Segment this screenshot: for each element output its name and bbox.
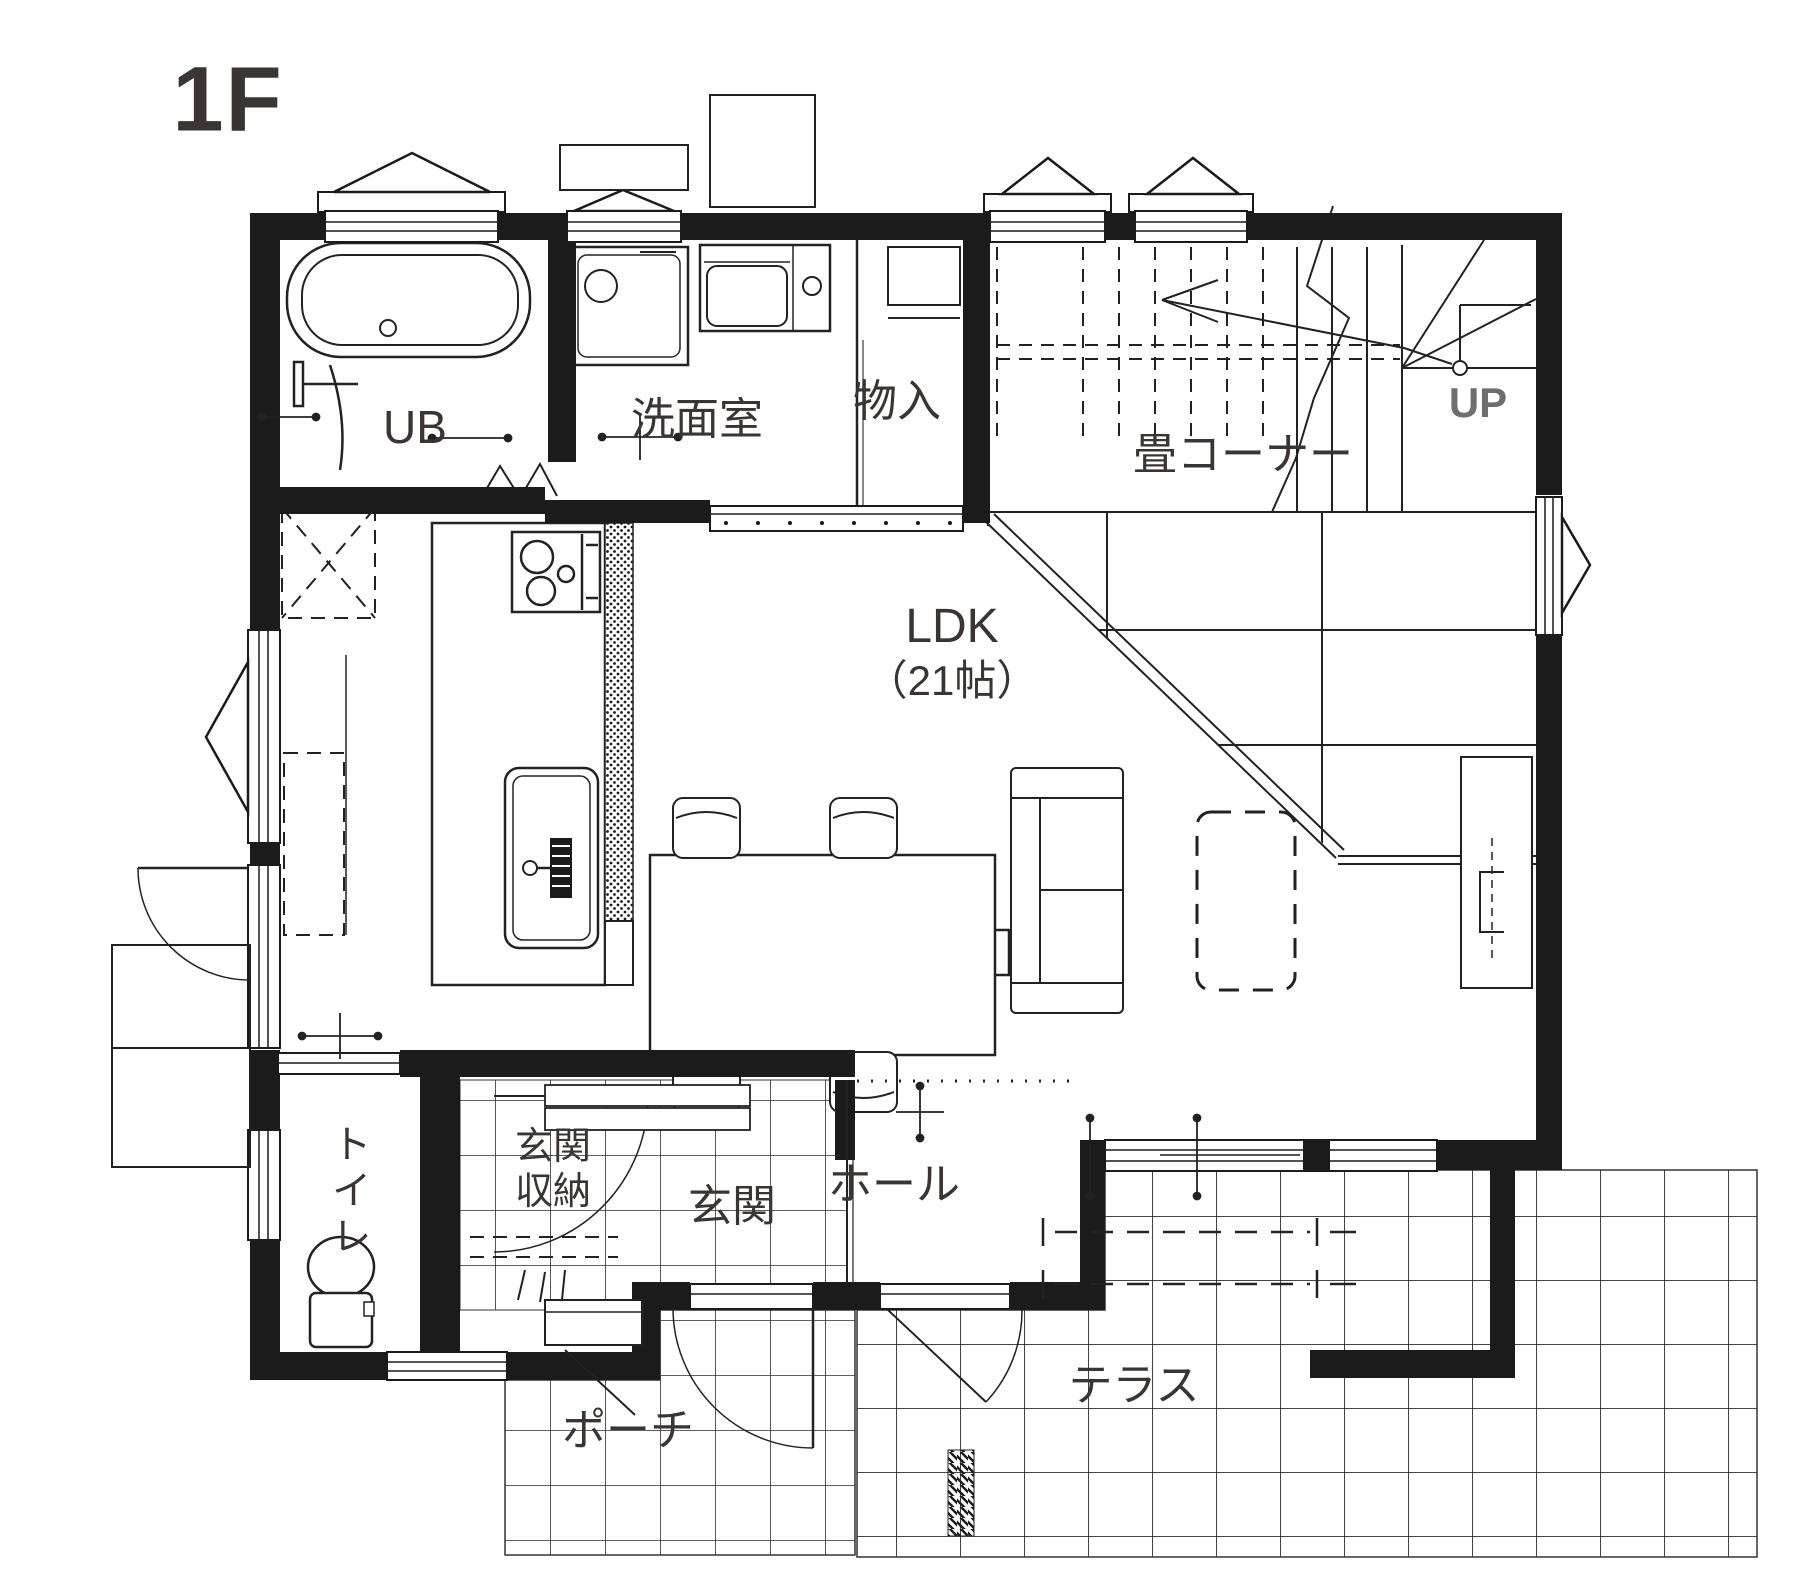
- vanity-sink-icon: [700, 245, 830, 331]
- terrace-tile-floor: [857, 1170, 1757, 1557]
- slider-mullion: [1303, 1140, 1330, 1170]
- closet-shelf-icon: [888, 247, 960, 318]
- room-label-hall: ホール: [828, 1159, 960, 1211]
- floor-plan-page: 1F UB 洗面室 物入 畳コーナー UP LDK （21帖） トイレ 玄関収納…: [0, 0, 1800, 1584]
- washing-machine-icon: [570, 247, 688, 365]
- floor-plan-canvas: [0, 0, 1800, 1584]
- porch-step-hatch: [948, 1450, 974, 1536]
- ldk-size: （21帖）: [866, 656, 1039, 706]
- tv-board-icon: [1461, 757, 1532, 988]
- kitchen-counter: [432, 523, 633, 985]
- washroom-storage-divider: [857, 240, 863, 505]
- ldk-name: LDK: [866, 599, 1039, 656]
- room-label-storage: 物入: [853, 376, 941, 428]
- water-heater-icon: [560, 95, 815, 207]
- back-door-icon: [138, 868, 250, 980]
- room-label-ldk: LDK （21帖）: [866, 599, 1039, 705]
- refrigerator-space-icon: [282, 508, 375, 618]
- floor-label: 1F: [172, 46, 283, 155]
- room-label-entry: 玄関: [688, 1181, 776, 1233]
- room-label-tatami-corner: 畳コーナー: [1133, 429, 1353, 481]
- cupboard-space-icon: [284, 655, 346, 935]
- room-label-toilet: トイレ: [323, 1123, 370, 1261]
- rug-icon: [1197, 812, 1295, 990]
- room-label-bath: UB: [383, 400, 447, 454]
- room-label-washroom: 洗面室: [631, 394, 763, 446]
- sofa-icon: [1011, 768, 1123, 1013]
- room-label-terrace: テラス: [1068, 1360, 1199, 1412]
- shower-mixer-icon: [294, 362, 358, 470]
- room-label-entry-storage: 玄関収納: [512, 1125, 594, 1215]
- bathtub-icon: [287, 243, 530, 357]
- dining-table-icon: [650, 855, 1009, 1055]
- room-label-porch: ポーチ: [562, 1405, 694, 1457]
- stairs-up-label: UP: [1449, 378, 1507, 428]
